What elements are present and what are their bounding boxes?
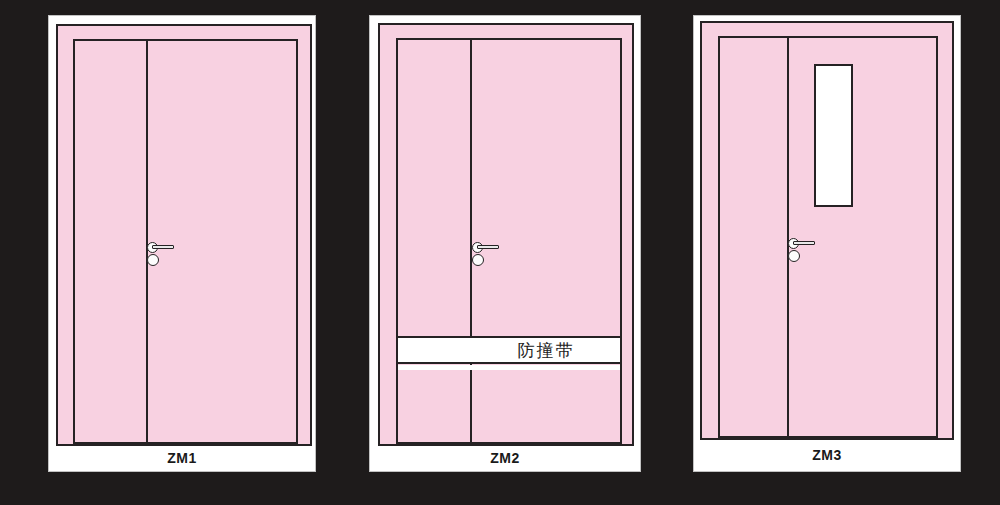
- door-handle-icon: [472, 242, 506, 268]
- door-zm3-leaves: [718, 36, 938, 438]
- anti-collision-band-label: 防撞带: [472, 338, 620, 362]
- door-zm3-frame-panel: [700, 21, 954, 440]
- door-zm1-label: ZM1: [49, 444, 315, 471]
- lock-cylinder-icon: [472, 254, 484, 266]
- door-zm3-label: ZM3: [694, 439, 960, 471]
- door-zm2: 防撞带 ZM2: [369, 15, 641, 472]
- handle-lever-icon: [793, 241, 815, 245]
- door-zm1-leaves: [73, 39, 298, 444]
- door-zm1: ZM1: [48, 15, 316, 472]
- door-elevation-diagram: ZM1 防撞带 ZM2: [0, 0, 1000, 505]
- vision-window: [814, 64, 853, 207]
- handle-lever-icon: [477, 245, 499, 249]
- lock-cylinder-icon: [147, 254, 159, 266]
- door-handle-icon: [147, 242, 181, 268]
- door-zm3-meeting-stile: [787, 38, 789, 436]
- door-zm2-label: ZM2: [370, 444, 640, 471]
- door-zm2-leaves: 防撞带: [396, 38, 622, 444]
- door-zm2-meeting-stile: [470, 40, 472, 442]
- door-zm3: ZM3: [693, 15, 961, 472]
- door-zm2-frame-panel: 防撞带: [378, 23, 634, 446]
- door-zm1-frame-panel: [56, 24, 312, 446]
- handle-lever-icon: [152, 245, 174, 249]
- door-handle-icon: [788, 238, 822, 264]
- anti-collision-band-lower-strip: [398, 365, 620, 370]
- anti-collision-band: 防撞带: [398, 336, 620, 364]
- lock-cylinder-icon: [788, 250, 800, 262]
